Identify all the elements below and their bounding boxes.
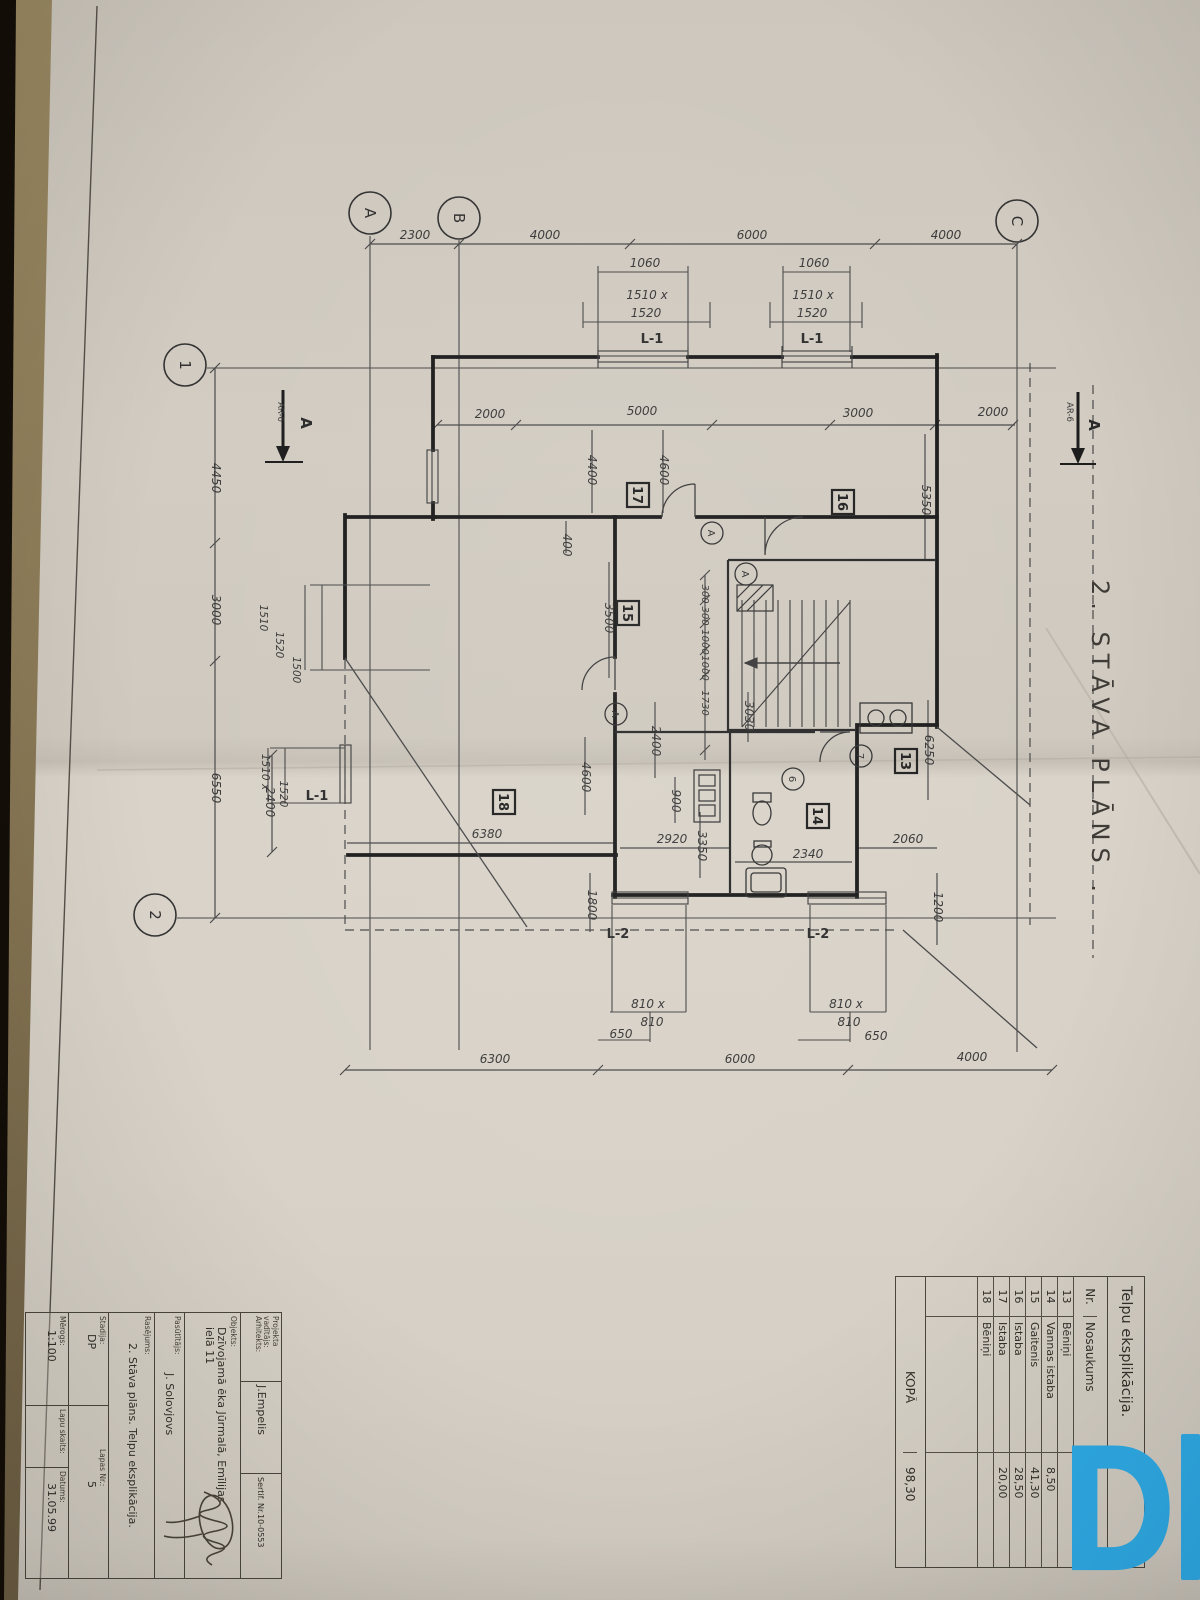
- dim-inner-2000b: 2000: [978, 405, 1009, 419]
- win2-mark: L-1: [801, 332, 824, 347]
- dim-900: 900: [669, 790, 683, 813]
- winB2-mark: L-2: [807, 927, 830, 942]
- d im-1000a: 1000: [699, 629, 710, 654]
- door-tag-a3: A: [609, 711, 620, 718]
- dim-bottom-6300: 6300: [480, 1052, 511, 1066]
- row-area: [978, 1453, 993, 1567]
- col-header-nr: Nr.: [1084, 1277, 1098, 1317]
- row-name: Bēniņi: [1058, 1317, 1073, 1453]
- room-number-14: 14: [809, 807, 824, 825]
- sheet-number: 5: [86, 1481, 98, 1575]
- photo-of-floor-plan: A B C 1 2: [0, 0, 1200, 1600]
- row-nr: 16: [1010, 1277, 1025, 1317]
- dim-5350: 5350: [919, 485, 933, 516]
- table-filler: [926, 1277, 977, 1567]
- dim-2060: 2060: [893, 832, 924, 846]
- bathroom-fixtures: [746, 793, 786, 897]
- terrace-diagonals: [345, 658, 1037, 1048]
- winL2-mark: L-1: [306, 789, 329, 804]
- dim-4400: 4400: [585, 455, 599, 486]
- winB1-650: 650: [610, 1027, 633, 1041]
- axis-label-2: 2: [146, 910, 164, 920]
- dim-300b: 300: [699, 606, 710, 625]
- door-arcs: [582, 484, 850, 762]
- toilet-bowl: [753, 801, 771, 825]
- win2-1520: 1520: [797, 306, 828, 320]
- door-tag-a2: A: [739, 571, 750, 578]
- row-nr: 18: [978, 1277, 993, 1317]
- total-area: 98,30: [904, 1453, 918, 1567]
- label-lapu-skaits: Lapu skaits:: [58, 1409, 67, 1464]
- door-tag-7: 7: [854, 753, 865, 759]
- dim-6250: 6250: [922, 735, 936, 766]
- dim-4600b: 4600: [579, 762, 593, 793]
- dim-1730: 1730: [699, 690, 710, 715]
- room-number-15: 15: [619, 604, 634, 622]
- scale-value: 1:100: [46, 1330, 58, 1402]
- label-lapas: Lapas Nr.:: [98, 1449, 107, 1575]
- radiator: [694, 770, 720, 822]
- table-total-row: KOPĀ 98,30: [896, 1277, 926, 1567]
- win1-1520: 1520: [631, 306, 662, 320]
- dimension-lines: [210, 239, 1057, 1075]
- client-value: J. Solovjovs: [163, 1373, 175, 1435]
- label-stadija: Stadija:: [98, 1316, 107, 1402]
- dim-2340: 2340: [793, 847, 824, 861]
- door-tag-a1: A: [705, 530, 716, 537]
- dim-1800: 1800: [585, 890, 599, 921]
- row-nr: 14: [1042, 1277, 1057, 1317]
- label-merogs: Mērogs:: [58, 1316, 67, 1402]
- win2-1060: 1060: [799, 256, 830, 270]
- winB2-810: 810: [838, 1015, 861, 1029]
- label-projekta: Projekta: [271, 1316, 280, 1378]
- axis-label-a: A: [361, 208, 379, 219]
- table-row: 13 Bēniņi: [1057, 1277, 1073, 1567]
- row-area: 8,50: [1042, 1453, 1057, 1567]
- winL2-1510: 1510 x: [259, 754, 271, 791]
- dim-bottom-4000: 4000: [957, 1050, 988, 1064]
- table-row: 18 Bēniņi: [977, 1277, 993, 1567]
- dim-2400c: 2400: [649, 726, 663, 757]
- axis-bubbles: [134, 192, 1038, 936]
- winL2-1520: 1520: [277, 781, 289, 808]
- winB2-650: 650: [865, 1029, 888, 1043]
- dim-left-6550: 6550: [209, 773, 223, 804]
- room-number-17: 17: [629, 486, 644, 504]
- dim-3030: 3030: [742, 701, 756, 732]
- room-number-18: 18: [495, 793, 510, 811]
- row-name: Istaba: [1010, 1317, 1025, 1453]
- dim-left-3000: 3000: [209, 595, 223, 626]
- dim-top-6000: 6000: [737, 228, 768, 242]
- row-name: Istaba: [994, 1317, 1009, 1453]
- table-row: 14 Vannas istaba 8,50: [1041, 1277, 1057, 1567]
- dim-300a: 300: [699, 584, 710, 603]
- row-area: [1058, 1453, 1073, 1567]
- axis-label-b: B: [450, 213, 468, 223]
- label-rasejums: Rasējums:: [143, 1316, 152, 1355]
- watermark-bar: [1181, 1434, 1200, 1580]
- room-number-16: 16: [834, 493, 849, 511]
- dashed-lines: [345, 363, 1093, 958]
- row-area: 41,30: [1026, 1453, 1041, 1567]
- architect-name: J.Empelis: [241, 1381, 281, 1473]
- win1-1510: 1510 x: [626, 288, 668, 302]
- dim-left-4450: 4450: [209, 463, 223, 494]
- win1-mark: L-1: [641, 332, 664, 347]
- window-annotation-lines: [268, 266, 886, 1042]
- label-arhitekts: Arhitekts:: [254, 1316, 263, 1378]
- dim-4600a: 4600: [657, 455, 671, 486]
- dim-400: 400: [560, 534, 574, 557]
- dim-top-4000b: 4000: [931, 228, 962, 242]
- total-label: KOPĀ: [904, 1317, 918, 1453]
- stairs: [742, 600, 850, 727]
- win2-1510: 1510 x: [792, 288, 834, 302]
- plan-title: 2. STĀVA PLĀNS .: [1086, 580, 1114, 899]
- winB1-mark: L-2: [607, 927, 630, 942]
- label-objekts: Objekts:: [229, 1316, 238, 1347]
- drawing-name: 2. Stāva plāns. Telpu eksplikācija.: [126, 1343, 138, 1563]
- date-value: 31.05.99: [46, 1483, 58, 1575]
- section-markers: [265, 390, 1096, 464]
- label-datums: Datums:: [58, 1471, 67, 1575]
- win1-1060: 1060: [630, 256, 661, 270]
- axis-label-1: 1: [176, 360, 194, 370]
- dim-left-2400: 2400: [263, 787, 277, 818]
- door-tags: [605, 522, 872, 790]
- label-pasutitajs: Pasūtītājs:: [173, 1316, 182, 1355]
- dim-top-2300: 2300: [400, 228, 431, 242]
- walls: [345, 355, 937, 897]
- dim-top-4000a: 4000: [530, 228, 561, 242]
- row-nr: 15: [1026, 1277, 1041, 1317]
- dim-inner-2000a: 2000: [475, 407, 506, 421]
- winL-1510: 1510: [257, 605, 269, 632]
- section-ref-left: AR-6: [275, 402, 285, 422]
- stamp-row-author: Projekta vadītājs: Arhitekts: J.Empelis …: [241, 1313, 281, 1578]
- section-label-left: A: [297, 417, 315, 429]
- dim-1200: 1200: [931, 892, 945, 923]
- winB1-810: 810: [641, 1015, 664, 1029]
- row-area: 28,50: [1010, 1453, 1025, 1567]
- row-name: Vannas istaba: [1042, 1317, 1057, 1453]
- title-block: Projekta vadītājs: Arhitekts: J.Empelis …: [25, 1312, 282, 1579]
- winL-1500: 1500: [290, 657, 302, 684]
- dim-1000b: 1000: [699, 655, 710, 680]
- door-tag-6: 6: [786, 776, 797, 782]
- dim-6380: 6380: [472, 827, 503, 841]
- room-number-13: 13: [897, 752, 912, 770]
- row-name: Bēniņi: [978, 1317, 993, 1453]
- double-basin: [860, 703, 912, 733]
- table-row: 16 Istaba 28,50: [1009, 1277, 1025, 1567]
- dim-bottom-6000: 6000: [725, 1052, 756, 1066]
- table-row: 17 Istaba 20,00: [993, 1277, 1009, 1567]
- row-area: 20,00: [994, 1453, 1009, 1567]
- winB1-810x: 810 x: [631, 997, 666, 1011]
- watermark-d-logo: [1072, 1428, 1172, 1590]
- section-ref-right: AR-6: [1064, 402, 1074, 422]
- certificate-number: Sertif. Nr.10-0553: [241, 1473, 281, 1578]
- row-nr: 13: [1058, 1277, 1073, 1317]
- dim-3500: 3500: [602, 603, 616, 634]
- stage-value: DP: [86, 1334, 98, 1402]
- winL-1520: 1520: [273, 632, 285, 659]
- row-nr: 17: [994, 1277, 1009, 1317]
- winB2-810x: 810 x: [829, 997, 864, 1011]
- dim-inner-3000: 3000: [843, 406, 874, 420]
- dim-2920: 2920: [657, 832, 688, 846]
- table-row: 15 Gaitenis 41,30: [1025, 1277, 1041, 1567]
- dim-inner-5000: 5000: [627, 404, 658, 418]
- dim-3350: 3350: [695, 831, 709, 862]
- section-label-right: A: [1085, 419, 1103, 431]
- row-name: Gaitenis: [1026, 1317, 1041, 1453]
- label-vaditajs: vadītājs:: [262, 1316, 271, 1378]
- axis-label-c: C: [1008, 216, 1026, 226]
